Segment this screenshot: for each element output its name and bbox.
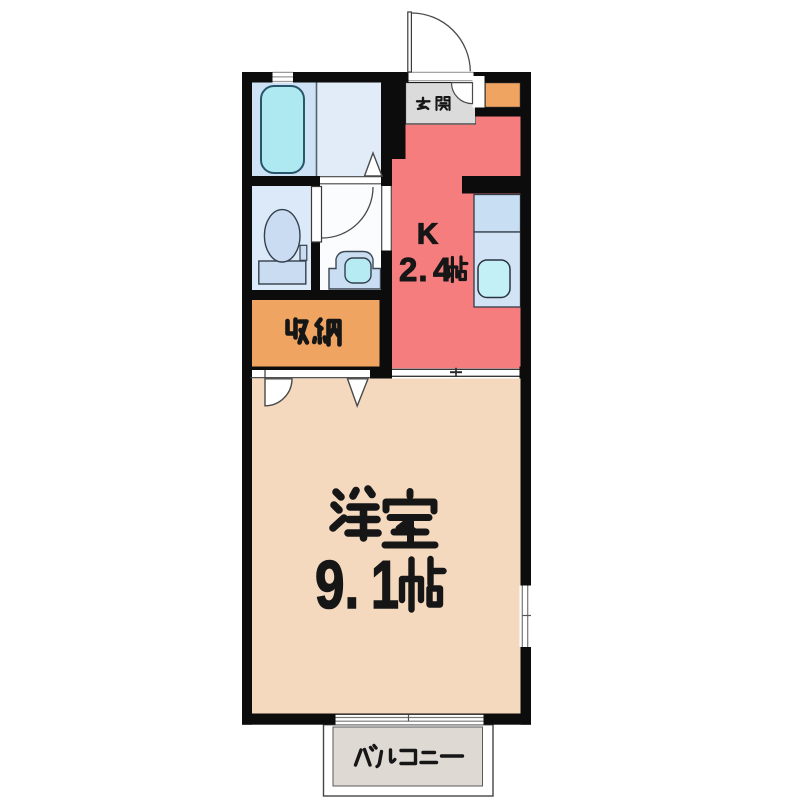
svg-text:K: K — [417, 219, 438, 251]
svg-text:9.: 9. — [315, 547, 359, 623]
svg-text:2.: 2. — [399, 251, 429, 288]
svg-text:1: 1 — [371, 547, 399, 623]
